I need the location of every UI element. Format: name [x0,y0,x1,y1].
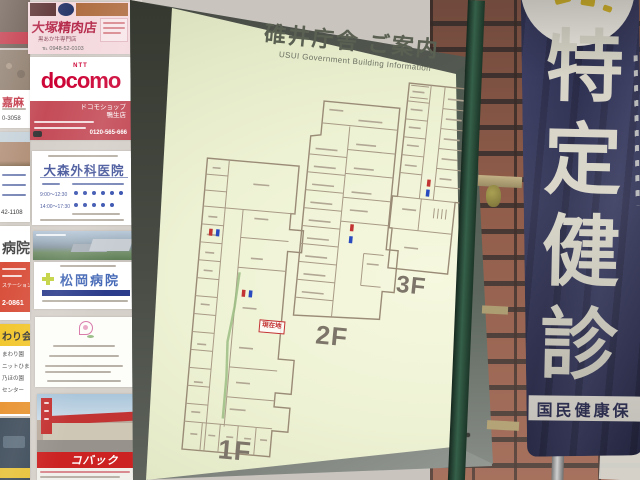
ad-himawari-partial: わり会 まわり園 ニットひまわり 乃ほの園 センター [0,324,30,416]
blurred-text-line [103,22,125,24]
facility-item: ニットひまわり [2,362,30,370]
wari-label: わり会 [2,328,30,343]
divider [40,177,128,178]
blurred-text-line [42,300,128,302]
ad-photo-partial-top: 43-0058 [0,0,30,48]
blurred-text-line [49,355,119,357]
hours-afternoon: 14:00～17:30 [40,203,70,210]
blurred-text-line [2,108,26,110]
blurred-text-line [103,27,125,29]
blurred-text-line [36,234,66,236]
schedule-header [42,183,60,185]
matsuoka-name: 松岡病院 [60,270,120,289]
pole-strap [482,305,508,314]
ad-yellow-strip [0,468,30,478]
hospital-label: 病院 [2,238,30,258]
aerial-building [89,239,133,251]
photo-scene: 43-0058 嘉麻 0-3058 42-1108 病院 ステーション 2-08… [0,0,640,480]
blurred-text-line [45,365,123,367]
docomo-logo: docomo [30,68,131,94]
blurred-text-line [44,418,49,420]
advertisement-panel: 43-0058 嘉麻 0-3058 42-1108 病院 ステーション 2-08… [0,0,142,480]
docomo-phone: 0120-565-666 [90,130,127,136]
red-vertical-banner [41,398,52,434]
ad-phone-fragment: 2-0861 [2,300,24,307]
registered-mark [33,131,42,137]
blurred-text-line [34,127,86,129]
hospital-cross-icon [42,273,54,285]
schedule-dots-row1 [74,191,123,195]
ad-matsuoka-hospital: 松岡病院 [34,262,137,309]
hospital-red-section: ステーション 2-0861 [0,262,30,312]
blurred-text-line [44,410,49,412]
floor-label-1f: 1F [217,434,253,468]
pole-strap [487,420,519,431]
ad-docomo: NTT docomo ドコモショップ 鴨生店 0120-565-666 [30,57,131,140]
ad-photo-partial-bottom [0,418,30,480]
shop-building [43,423,136,441]
matsuoka-navy-bar [42,290,130,296]
floor-label-2f: 2F [314,319,349,353]
kobac-name: コバック [55,452,119,468]
blurred-text-line [2,275,22,277]
docomo-red-section: ドコモショップ 鴨生店 0120-565-666 [30,101,131,140]
hours-morning: 9:00～12:30 [40,191,67,198]
docomo-shop-name: ドコモショップ 鴨生店 [81,104,127,121]
crowd-photo [0,50,30,90]
blurred-text-line [72,213,120,215]
you-are-here-marker: 現在地 [259,319,285,334]
butcher-logo-photo [58,3,74,16]
blurred-text-line [48,155,118,157]
butcher-info-box [100,18,128,42]
ad-yellow-header: わり会 [0,324,30,346]
butcher-phone: ℡ 0948-52-0103 [42,46,84,52]
ad-phone-fragment: 42-1108 [1,210,23,216]
schedule-dots-row2 [74,203,114,207]
flower-logo [79,321,93,335]
health-check-banner: 特 定 健 診 国民健康保 [521,0,640,457]
blurred-text-line [34,121,94,123]
blurred-text-line [47,380,121,382]
butcher-photo [30,3,56,16]
kobac-info-strip [37,468,136,480]
blurred-text-line [2,268,26,270]
blurred-text-line [40,476,120,478]
blurred-text-line [2,194,26,196]
floor-label-3f: 3F [395,271,428,302]
blurred-text-line [40,471,130,473]
ad-kobac: コバック [37,394,136,480]
facility-item: まわり園 [2,350,24,358]
ad-aerial-photo [33,231,136,260]
schedule-days [72,183,124,185]
ad-flower-clinic [35,317,135,387]
blurred-text-line [103,32,121,34]
ad-phone-fragment: 0-3058 [2,116,21,122]
blurred-text-line [53,345,115,347]
kobac-logo-bar: コバック [37,452,136,468]
blurred-text-line [2,184,26,186]
shop-parking [37,440,136,452]
ad-kama-partial: 嘉麻 0-3058 [0,50,30,128]
facility-item: センター [2,386,24,394]
blurred-text-line [60,265,116,267]
ad-hospital-partial: 病院 ステーション 2-0861 [0,226,30,320]
blurred-text-line [2,174,26,176]
ad-clinic-partial: 42-1108 [0,132,30,222]
meat-photo [76,3,128,16]
butcher-subtitle: 黒あか牛専門店 [38,35,77,43]
blurred-text-line [45,371,111,373]
station-label: ステーション [2,282,30,289]
truck-photo [3,436,25,448]
facility-item: 乃ほの園 [2,374,24,382]
ad-omori-clinic: 大森外科医院 9:00～12:30 14:00～17:30 [32,151,136,225]
ad-orange-footer [0,402,30,414]
blurred-text-line [44,402,49,404]
flower-leaf [87,335,94,338]
pole-bracket [478,175,523,188]
banner-fabric-shading [521,0,640,457]
building-photo [0,132,30,166]
pole-knob [486,185,501,207]
ad-red-bar: 43-0058 [0,32,30,44]
butcher-name: 大塚精肉店 [31,17,98,36]
blurred-text-line [40,219,124,221]
ad-butcher-shop: 大塚精肉店 黒あか牛専門店 ℡ 0948-52-0103 [28,2,130,54]
